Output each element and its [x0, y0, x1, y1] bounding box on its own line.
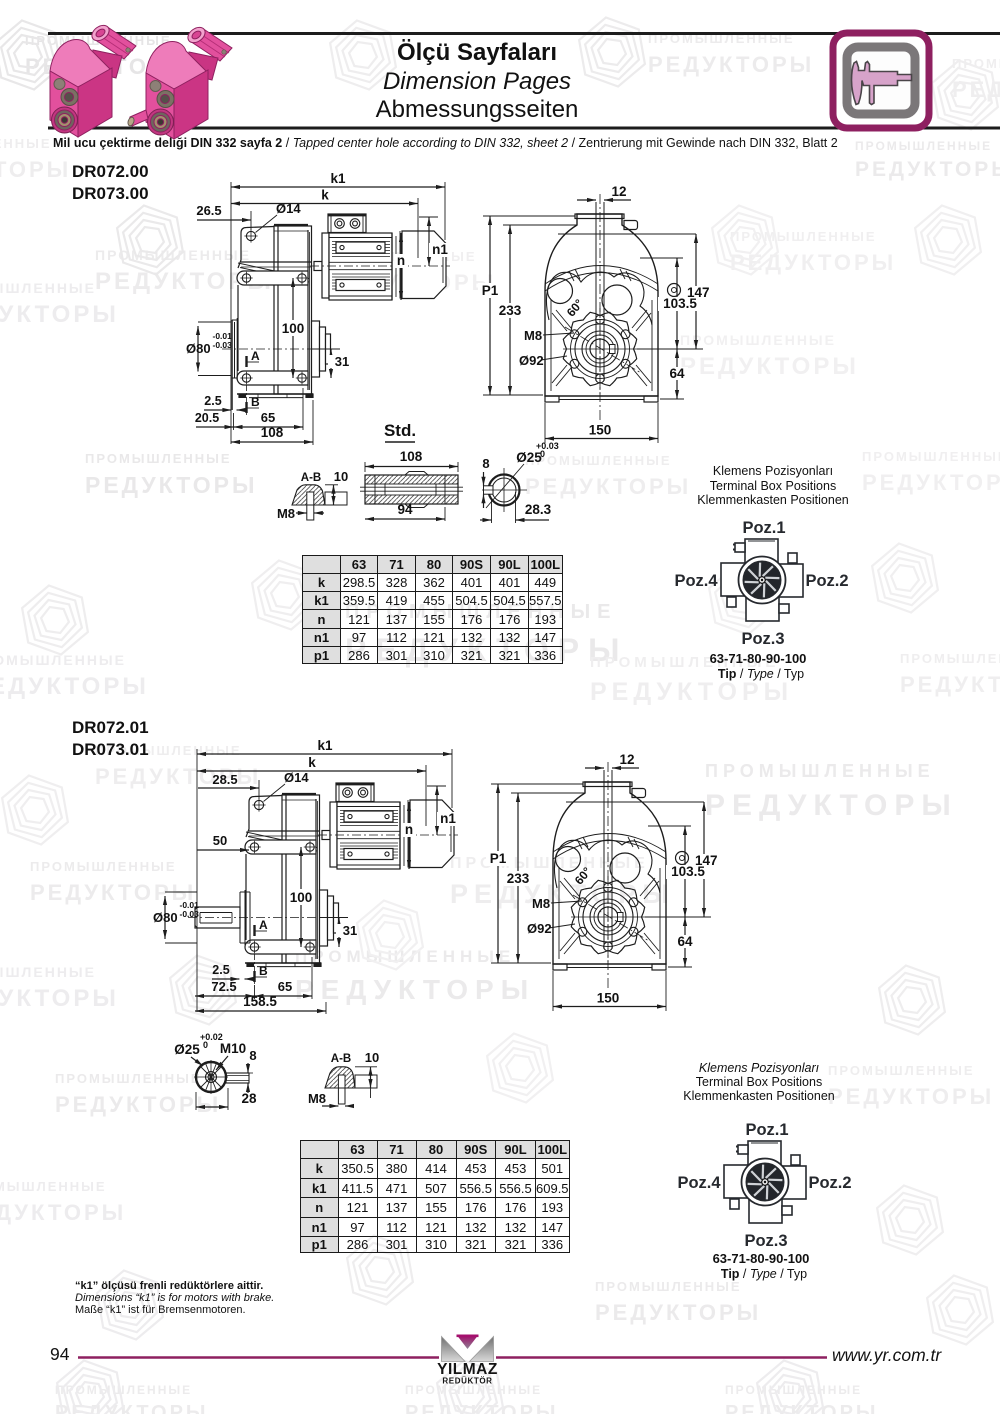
svg-text:8: 8: [249, 1048, 256, 1063]
svg-text:63-71-80-90-100: 63-71-80-90-100: [713, 1251, 810, 1266]
svg-text:Terminal Box Positions: Terminal Box Positions: [710, 479, 836, 493]
svg-text:Tip / Type / Typ: Tip / Type / Typ: [718, 667, 804, 681]
svg-text:P1: P1: [490, 851, 507, 866]
svg-text:0: 0: [203, 1040, 208, 1050]
svg-text:DR072.01: DR072.01: [72, 718, 149, 737]
svg-text:28: 28: [241, 1091, 257, 1106]
svg-text:Poz.3: Poz.3: [744, 1232, 787, 1250]
svg-text:M8: M8: [532, 896, 550, 911]
svg-text:n: n: [397, 253, 405, 268]
svg-text:A: A: [251, 349, 260, 363]
svg-text:Klemens Pozisyonları: Klemens Pozisyonları: [713, 464, 833, 478]
svg-text:Mil ucu çektirme deliği DIN 33: Mil ucu çektirme deliği DIN 332 sayfa 2 …: [53, 136, 838, 150]
svg-text:k: k: [308, 755, 316, 770]
svg-text:8: 8: [482, 456, 489, 471]
svg-text:64: 64: [677, 934, 693, 949]
svg-text:Terminal Box Positions: Terminal Box Positions: [696, 1075, 822, 1089]
svg-text:Abmessungsseiten: Abmessungsseiten: [376, 96, 579, 123]
svg-text:72.5: 72.5: [211, 979, 236, 994]
svg-text:103.5: 103.5: [671, 864, 705, 879]
svg-text:Poz.1: Poz.1: [745, 1121, 788, 1139]
svg-text:10: 10: [334, 469, 348, 484]
svg-text:P1: P1: [482, 283, 499, 298]
svg-text:28.3: 28.3: [525, 502, 552, 517]
svg-text:108: 108: [261, 425, 284, 440]
svg-text:10: 10: [365, 1050, 379, 1065]
svg-text:63-71-80-90-100: 63-71-80-90-100: [710, 651, 807, 666]
svg-text:Dimension Pages: Dimension Pages: [383, 68, 571, 95]
svg-text:Klemens Pozisyonları: Klemens Pozisyonları: [699, 1061, 819, 1075]
svg-text:2.5: 2.5: [204, 394, 221, 408]
svg-text:Tip / Type / Typ: Tip / Type / Typ: [721, 1267, 807, 1281]
svg-text:100: 100: [282, 321, 305, 336]
svg-text:-0.03: -0.03: [213, 340, 233, 350]
svg-text:2.5: 2.5: [212, 963, 229, 977]
svg-text:B: B: [251, 395, 260, 409]
svg-text:A-B: A-B: [331, 1053, 351, 1065]
svg-text:31: 31: [335, 354, 349, 369]
svg-text:k1: k1: [330, 171, 346, 186]
svg-text:31: 31: [343, 923, 357, 938]
svg-text:150: 150: [597, 991, 620, 1006]
svg-text:Ø80: Ø80: [153, 910, 178, 925]
svg-text:64: 64: [669, 366, 685, 381]
svg-text:M8: M8: [308, 1091, 326, 1106]
svg-text:M10: M10: [220, 1041, 246, 1056]
svg-text:12: 12: [611, 184, 626, 199]
svg-text:94: 94: [397, 502, 413, 517]
svg-text:M8: M8: [524, 328, 542, 343]
svg-text:Ø92: Ø92: [519, 353, 544, 368]
svg-text:n: n: [405, 822, 413, 837]
svg-text:k: k: [321, 188, 329, 203]
svg-text:26.5: 26.5: [196, 203, 221, 218]
svg-text:n1: n1: [432, 242, 448, 257]
svg-text:28.5: 28.5: [212, 772, 237, 787]
svg-text:Std.: Std.: [384, 421, 416, 440]
svg-text:n1: n1: [440, 811, 456, 826]
svg-text:YILMAZ: YILMAZ: [437, 1361, 498, 1378]
svg-text:0: 0: [540, 449, 545, 459]
svg-text:Poz.4: Poz.4: [677, 1174, 721, 1192]
svg-text:Ø92: Ø92: [527, 921, 552, 936]
svg-text:20.5: 20.5: [195, 411, 219, 425]
svg-text:Ölçü Sayfaları: Ölçü Sayfaları: [397, 39, 557, 66]
svg-text:100: 100: [290, 890, 313, 905]
svg-text:B: B: [259, 964, 268, 978]
svg-text:150: 150: [589, 423, 612, 438]
svg-text:REDÜKTÖR: REDÜKTÖR: [442, 1377, 492, 1386]
svg-text:158.5: 158.5: [243, 994, 277, 1009]
svg-text:Klemmenkasten Positionen: Klemmenkasten Positionen: [697, 493, 849, 507]
svg-text:12: 12: [619, 752, 634, 767]
svg-text:50: 50: [213, 833, 227, 848]
svg-text:Klemmenkasten Positionen: Klemmenkasten Positionen: [683, 1089, 835, 1103]
svg-text:DR073.00: DR073.00: [72, 184, 149, 203]
svg-text:A: A: [259, 918, 268, 932]
svg-text:108: 108: [400, 449, 423, 464]
svg-text:Poz.1: Poz.1: [742, 519, 785, 537]
svg-text:Ø14: Ø14: [276, 201, 301, 216]
svg-text:Poz.4: Poz.4: [674, 572, 718, 590]
svg-text:-0.03: -0.03: [180, 909, 200, 919]
svg-text:DR073.01: DR073.01: [72, 740, 149, 759]
svg-text:60°: 60°: [572, 864, 595, 887]
svg-text:DR072.00: DR072.00: [72, 162, 149, 181]
svg-text:k1: k1: [317, 738, 333, 753]
svg-text:65: 65: [261, 410, 275, 425]
svg-text:Poz.2: Poz.2: [808, 1174, 851, 1192]
svg-text:A-B: A-B: [301, 472, 321, 484]
svg-text:60°: 60°: [564, 296, 587, 319]
svg-text:233: 233: [499, 303, 522, 318]
svg-text:103.5: 103.5: [663, 296, 697, 311]
svg-text:233: 233: [507, 871, 530, 886]
svg-text:Ø25: Ø25: [174, 1042, 200, 1057]
svg-text:Ø80: Ø80: [186, 341, 211, 356]
svg-text:Poz.3: Poz.3: [741, 630, 784, 648]
svg-text:Poz.2: Poz.2: [805, 572, 848, 590]
svg-text:Ø25: Ø25: [516, 450, 542, 465]
svg-text:M8: M8: [277, 506, 295, 521]
svg-text:Ø14: Ø14: [284, 770, 309, 785]
svg-text:65: 65: [278, 979, 292, 994]
